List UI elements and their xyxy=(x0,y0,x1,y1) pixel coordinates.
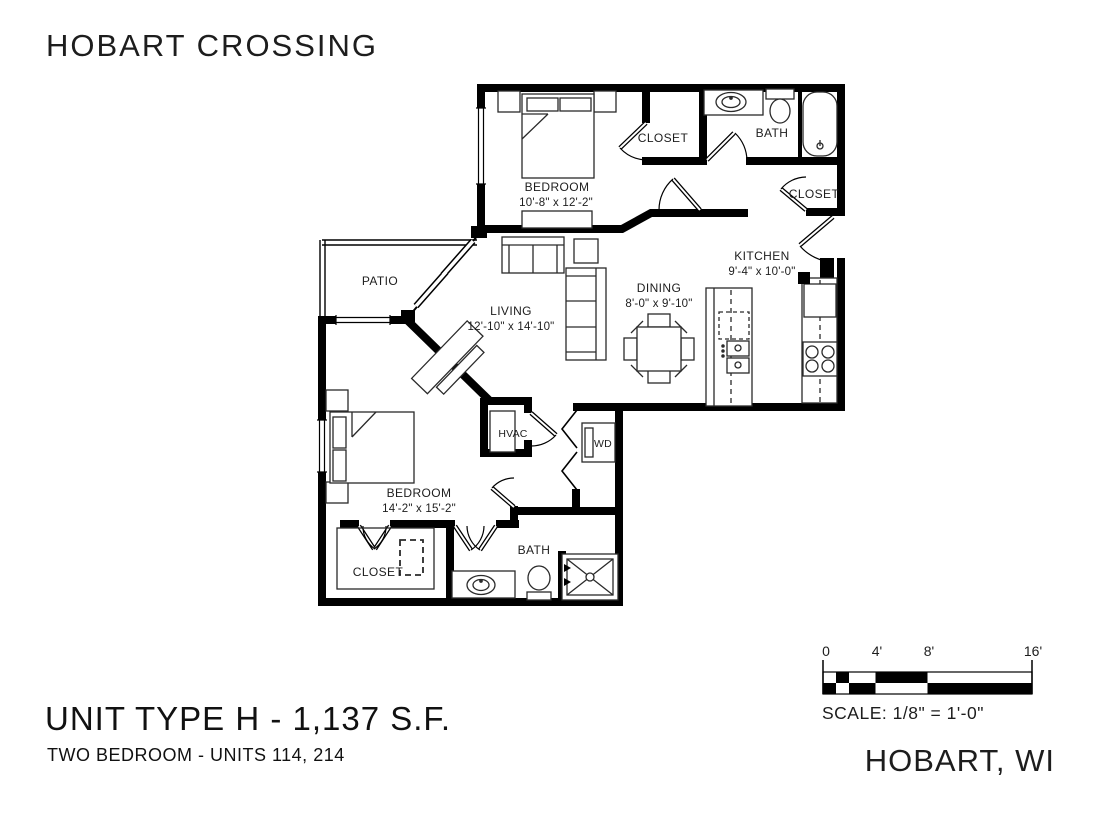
unit-subtitle: TWO BEDROOM - UNITS 114, 214 xyxy=(47,745,345,766)
dining-dims: 8'-0" x 9'-10" xyxy=(625,298,692,310)
scale-tick-0: 0 xyxy=(822,643,830,659)
door-hvac xyxy=(531,413,556,446)
patio-outline xyxy=(320,240,477,316)
patio-slider-door xyxy=(410,234,479,315)
dining-label: DINING xyxy=(637,281,681,295)
window-bedroom2-left xyxy=(317,420,327,472)
shower-icon xyxy=(562,554,618,600)
floorplan-drawing: BEDROOM 10'-8" x 12'-2" CLOSET BATH CLOS… xyxy=(0,0,1100,813)
loveseat-icon xyxy=(502,237,564,273)
kitchen-label: KITCHEN xyxy=(734,249,789,263)
closet1-label: CLOSET xyxy=(638,131,689,145)
entry-closet-label: CLOSET xyxy=(789,187,840,201)
door-bath2-double xyxy=(455,526,496,550)
living-dims: 12'-10" x 14'-10" xyxy=(468,321,555,333)
kitchen-island xyxy=(706,288,752,406)
floorplan-page: HOBART CROSSING xyxy=(0,0,1100,813)
bedroom2-dims: 14'-2" x 15'-2" xyxy=(382,503,456,515)
wd-label: WD xyxy=(594,438,612,450)
living-label: LIVING xyxy=(490,304,532,318)
door-closet2-double xyxy=(359,526,390,549)
bedroom1-dims: 10'-8" x 12'-2" xyxy=(519,197,593,209)
unit-title: UNIT TYPE H - 1,137 S.F. xyxy=(45,700,451,738)
bedroom1-label: BEDROOM xyxy=(525,180,590,194)
dining-set-icon xyxy=(624,314,694,383)
bedroom2-label: BEDROOM xyxy=(387,486,452,500)
scale-tick-4: 4' xyxy=(872,643,882,659)
kitchen-dims: 9'-4" x 10'-0" xyxy=(728,266,795,278)
closet2-label: CLOSET xyxy=(353,565,404,579)
patio-label: PATIO xyxy=(362,274,398,288)
side-table-icon xyxy=(574,239,598,263)
scale-tick-16: 16' xyxy=(1024,643,1042,659)
bath2-fixtures xyxy=(452,566,551,600)
door-bath1 xyxy=(707,133,747,161)
kitchen-counter xyxy=(798,272,837,403)
sofa-icon xyxy=(566,268,606,360)
bath1-label: BATH xyxy=(756,126,789,140)
window-bedroom1 xyxy=(476,108,486,184)
door-bedroom2 xyxy=(492,478,514,507)
hvac-label: HVAC xyxy=(498,428,527,440)
scale-caption: SCALE: 1/8" = 1'-0" xyxy=(822,703,984,723)
door-bedroom1 xyxy=(659,179,700,210)
location-label: HOBART, WI xyxy=(865,743,1055,778)
scale-bar: 0 4' 8' 16' SCALE: 1/8" = 1'-0" xyxy=(822,643,1042,723)
window-bedroom2-patio xyxy=(336,315,390,325)
bath2-label: BATH xyxy=(518,543,551,557)
scale-bar-segments xyxy=(823,672,1032,694)
door-entry xyxy=(800,217,833,262)
scale-tick-8: 8' xyxy=(924,643,934,659)
closet2-details xyxy=(337,528,434,589)
door-wd-bifold xyxy=(562,410,577,490)
